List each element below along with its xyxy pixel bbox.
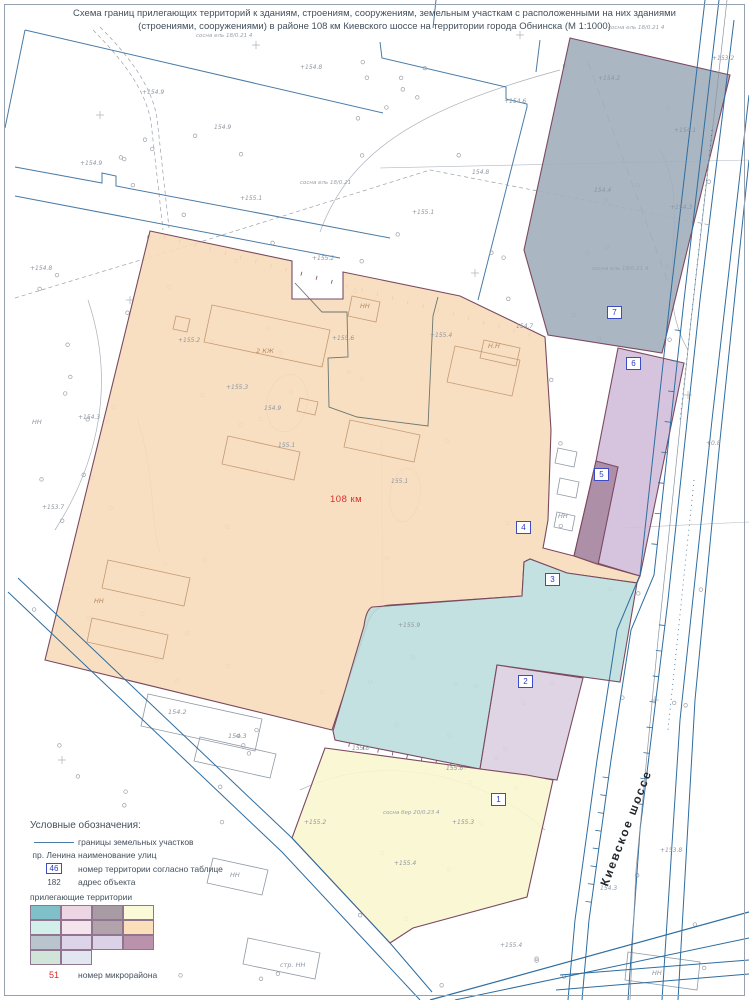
object-label: НН: [360, 302, 370, 310]
object-label: НН: [652, 969, 662, 977]
elevation-label: +155.4: [394, 860, 416, 867]
territory-badge-2: 2: [518, 675, 533, 688]
territory-badge-3: 3: [545, 573, 560, 586]
object-label: 2 КЖ: [256, 347, 274, 355]
elevation-label: 155.1: [391, 478, 408, 485]
elevation-label: +155.2: [178, 337, 200, 344]
elevation-label: +155.6: [332, 335, 354, 342]
elevation-label: +155.3: [452, 819, 474, 826]
territory-swatch-5: [30, 920, 61, 935]
elevation-label: +153.2: [712, 55, 734, 62]
legend-item-territory-number: 46 номер территории согласно таблице: [30, 863, 255, 874]
territory-badge-4: 4: [516, 521, 531, 534]
territory-swatch-10: [61, 935, 92, 950]
territory-badge-1: 1: [491, 793, 506, 806]
elevation-label: +0.8: [706, 440, 721, 447]
territory-swatch-7: [92, 920, 123, 935]
elevation-label: +155.9: [398, 622, 420, 629]
legend-item-label: номер территории согласно таблице: [78, 864, 223, 874]
elevation-label: 155.6: [446, 765, 463, 772]
object-label: стр. НН: [280, 961, 305, 969]
object-label: НН: [94, 597, 104, 605]
elevation-label: +155.2: [312, 255, 334, 262]
tree-annotation-label: сосна ель 18/0.21 4: [608, 25, 664, 31]
territory-swatch-8: [123, 920, 154, 935]
sheet-title-line1: Схема границ прилегающих территорий к зд…: [34, 7, 715, 20]
legend-adjacent-territories-title: прилегающие территории: [30, 892, 255, 902]
territory-swatch-11: [92, 935, 123, 950]
territory-badge-7: 7: [607, 306, 622, 319]
elevation-label: +154.2: [598, 75, 620, 82]
legend-item-label: наименование улиц: [78, 850, 156, 860]
elevation-label: +154.1: [674, 127, 696, 134]
elevation-label: +154.3: [670, 204, 692, 211]
territory-swatch-9: [30, 935, 61, 950]
tree-annotation-label: сосна ель 18/0.21: [300, 180, 351, 186]
elevation-label: 155.8: [352, 745, 369, 752]
object-address-symbol: 182: [30, 878, 78, 887]
territory-swatch-1: [30, 905, 61, 920]
elevation-label: +155.4: [430, 332, 452, 339]
territory-badge-5: 5: [594, 468, 609, 481]
object-label: 154.3: [228, 732, 247, 740]
elevation-label: 155.1: [278, 442, 295, 449]
tree-annotation-label: сосна ель 18/0.21 4: [196, 33, 252, 39]
object-label: НН: [32, 418, 42, 426]
territory-swatch-4: [123, 905, 154, 920]
object-label: 154.2: [168, 708, 187, 716]
elevation-label: 154.7: [516, 323, 533, 330]
territory-number-symbol: 46: [46, 863, 63, 874]
elevation-label: 154.8: [472, 169, 489, 176]
microdistrict-number-symbol: 51: [30, 970, 78, 980]
territory-swatch-6: [61, 920, 92, 935]
legend-item-parcel-borders: границы земельных участков: [30, 837, 255, 847]
legend-item-street-name: пр. Ленина наименование улиц: [30, 850, 255, 860]
map-label-overlay: Схема границ прилегающих территорий к зд…: [0, 0, 749, 1000]
elevation-label: +153.7: [42, 504, 64, 511]
territory-swatch-14: [61, 950, 92, 965]
elevation-label: +154.8: [300, 64, 322, 71]
legend-item-label: адрес объекта: [78, 877, 135, 887]
territory-color-swatches: [30, 905, 156, 965]
elevation-label: +155.1: [412, 209, 434, 216]
elevation-label: 154.4: [594, 187, 611, 194]
territory-swatch-12: [123, 935, 154, 950]
elevation-label: +154.3: [78, 414, 100, 421]
territory-swatch-2: [61, 905, 92, 920]
territory-badge-6: 6: [626, 357, 641, 370]
elevation-label: +153.8: [660, 847, 682, 854]
elevation-label: 154.9: [214, 124, 231, 131]
elevation-label: +154.9: [142, 89, 164, 96]
legend-item-object-address: 182 адрес объекта: [30, 877, 255, 887]
elevation-label: 154.3: [600, 885, 617, 892]
elevation-label: +154.6: [504, 98, 526, 105]
legend-title: Условные обозначения:: [30, 820, 255, 831]
legend: Условные обозначения: границы земельных …: [30, 820, 255, 983]
map-sheet: Схема границ прилегающих территорий к зд…: [0, 0, 749, 1000]
elevation-label: +154.9: [80, 160, 102, 167]
parcel-line-symbol: [34, 842, 74, 843]
elevation-label: +155.3: [226, 384, 248, 391]
territory-swatch-3: [92, 905, 123, 920]
legend-item-label: номер микрорайона: [78, 970, 157, 980]
object-label: НН: [558, 512, 568, 520]
tree-annotation-label: сосна бер 20/0.23 4: [383, 810, 440, 816]
elevation-label: +154.8: [30, 265, 52, 272]
elevation-label: +155.2: [304, 819, 326, 826]
elevation-label: 154.9: [264, 405, 281, 412]
legend-item-microdistrict-number: 51 номер микрорайона: [30, 970, 255, 980]
object-label: Н.Н: [488, 342, 500, 350]
kilometre-mark-label: 108 км: [330, 494, 362, 505]
elevation-label: +155.4: [500, 942, 522, 949]
legend-item-label: границы земельных участков: [78, 837, 194, 847]
territory-swatch-13: [30, 950, 61, 965]
road-name-label: Киевское шоссе: [597, 768, 654, 888]
street-name-symbol: пр. Ленина: [30, 850, 78, 860]
elevation-label: +155.1: [240, 195, 262, 202]
tree-annotation-label: сосна ель 18/0.21 4: [592, 266, 648, 272]
